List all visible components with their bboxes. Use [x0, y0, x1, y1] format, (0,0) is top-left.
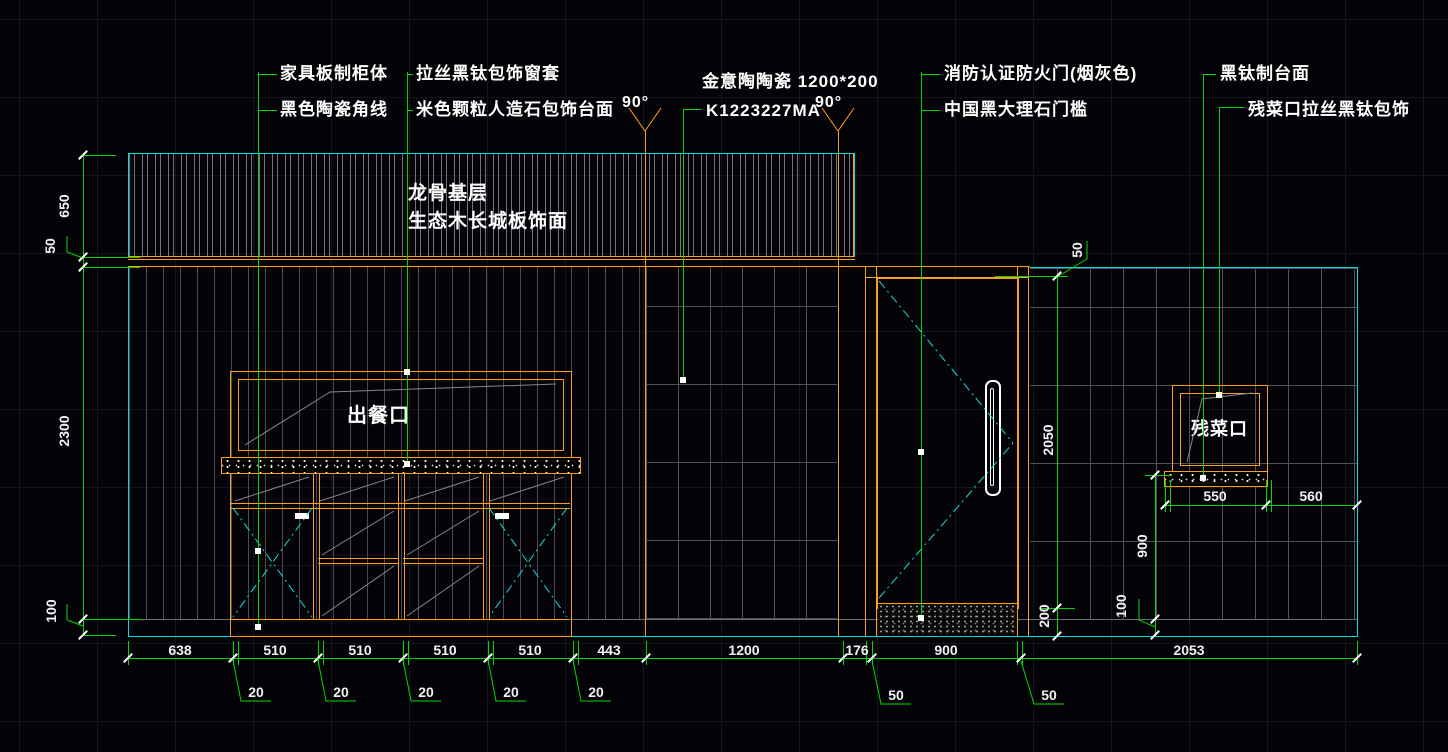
cabinet-label: 家具板制柜体	[280, 63, 388, 84]
cad-drawing-canvas[interactable]: 出餐口 残菜口	[0, 0, 1448, 752]
leader-dot	[404, 461, 410, 467]
dim-offset-20: 20	[328, 684, 354, 700]
dim-ext	[83, 257, 140, 258]
leader-tick	[921, 110, 940, 111]
dim-ext	[83, 619, 140, 620]
dim-ext	[408, 641, 409, 665]
dim-ext	[1271, 480, 1272, 512]
waste-width-dim-line	[1165, 505, 1357, 506]
dim-value: 900	[916, 642, 976, 658]
corner-line-label: 黑色陶瓷角线	[280, 99, 388, 120]
dim-ext	[1357, 641, 1358, 665]
dim-ext	[83, 267, 140, 268]
dim-value: 900	[1134, 526, 1150, 566]
dim-offset-20: 20	[498, 684, 524, 700]
dim-value: 50	[1069, 237, 1085, 263]
dim-value: 50	[42, 233, 58, 259]
dim-ext	[233, 641, 234, 665]
dim-value: 2300	[56, 407, 72, 455]
leader-dot	[1216, 392, 1222, 398]
dim-ext	[128, 641, 129, 665]
dim-value: 560	[1291, 488, 1331, 504]
leader-dot	[680, 377, 686, 383]
leader-door	[921, 72, 922, 618]
dim-ext	[403, 641, 404, 665]
tile-brand-label: 金意陶陶瓷 1200*200	[702, 71, 879, 92]
dim-value: 2050	[1040, 416, 1056, 464]
dim-ext	[646, 641, 647, 665]
leader-waste-clad	[1219, 107, 1220, 395]
dim-ext	[573, 641, 574, 665]
door-swing-lines	[879, 281, 1013, 598]
leader-tick	[921, 74, 940, 75]
eco-wood-label: 生态木长城板饰面	[408, 211, 568, 232]
leader-tick	[407, 74, 413, 75]
leader-dot	[918, 449, 924, 455]
dim-value: 2053	[1159, 642, 1219, 658]
leader-tick	[1219, 107, 1244, 108]
leader-tick	[258, 110, 277, 111]
angle-left-label: 90°	[622, 92, 649, 113]
keel-base-label: 龙骨基层	[408, 183, 488, 204]
leader-dot	[1200, 475, 1206, 481]
leader-cabinet	[258, 72, 259, 627]
leader-black-ti-top	[1203, 74, 1204, 478]
counter-dim-line	[1155, 475, 1156, 636]
leader-dot	[255, 548, 261, 554]
bottom-dim-line	[128, 658, 1358, 659]
dim-ext	[83, 155, 116, 156]
leader-dot	[918, 615, 924, 621]
leader-tick	[683, 109, 701, 110]
dim-value: 650	[56, 186, 72, 226]
leader-dot	[404, 369, 410, 375]
door-dim-line	[1057, 276, 1058, 636]
waste-port-cladding-label: 残菜口拉丝黑钛包饰	[1248, 99, 1410, 120]
dim-ext	[318, 641, 319, 665]
leader-tick	[258, 74, 277, 75]
dim-value: 510	[415, 642, 475, 658]
leader-dot	[255, 624, 261, 630]
dim-value: 510	[500, 642, 560, 658]
dim-ext	[1165, 480, 1166, 512]
dim-value: 550	[1195, 488, 1235, 504]
dim-ext	[238, 641, 239, 665]
fire-door-label: 消防认证防火门(烟灰色)	[944, 63, 1137, 84]
angle-right-label: 90°	[815, 92, 842, 113]
dim-ext	[1145, 475, 1172, 476]
dim-ext	[1170, 480, 1171, 512]
dim-value: 100	[43, 596, 59, 626]
leader-casing	[407, 72, 408, 466]
dim-ext	[488, 641, 489, 665]
stone-countertop-label: 米色颗粒人造石包饰台面	[416, 99, 614, 120]
dim-value: 443	[579, 642, 639, 658]
reflection-lines	[235, 384, 1252, 616]
leader-tick	[1203, 74, 1216, 75]
dim-value: 510	[330, 642, 390, 658]
dim-ext	[323, 641, 324, 665]
dim-offset-20: 20	[413, 684, 439, 700]
dim-offset-20: 20	[243, 684, 269, 700]
dimension-callout-leaders	[67, 236, 1155, 704]
cabinet-cross-lines	[233, 508, 567, 617]
black-titanium-top-label: 黑钛制台面	[1220, 63, 1310, 84]
tile-model-label: K1223227MA	[706, 100, 821, 121]
dim-value: 638	[150, 642, 210, 658]
dim-value: 200	[1036, 598, 1052, 634]
window-casing-label: 拉丝黑钛包饰窗套	[416, 63, 560, 84]
dim-value: 176	[827, 642, 887, 658]
dim-offset-20: 20	[583, 684, 609, 700]
leader-tick	[407, 110, 413, 111]
dim-offset-50: 50	[883, 687, 909, 703]
dim-value: 510	[245, 642, 305, 658]
threshold-label: 中国黑大理石门槛	[944, 99, 1088, 120]
dim-ext	[493, 641, 494, 665]
dim-value: 100	[1113, 591, 1129, 621]
dim-value: 1200	[714, 642, 774, 658]
dim-ext	[1266, 480, 1267, 512]
left-dim-line	[83, 155, 84, 636]
dim-ext	[83, 635, 116, 636]
leader-tile	[683, 109, 684, 380]
dim-offset-50: 50	[1036, 687, 1062, 703]
